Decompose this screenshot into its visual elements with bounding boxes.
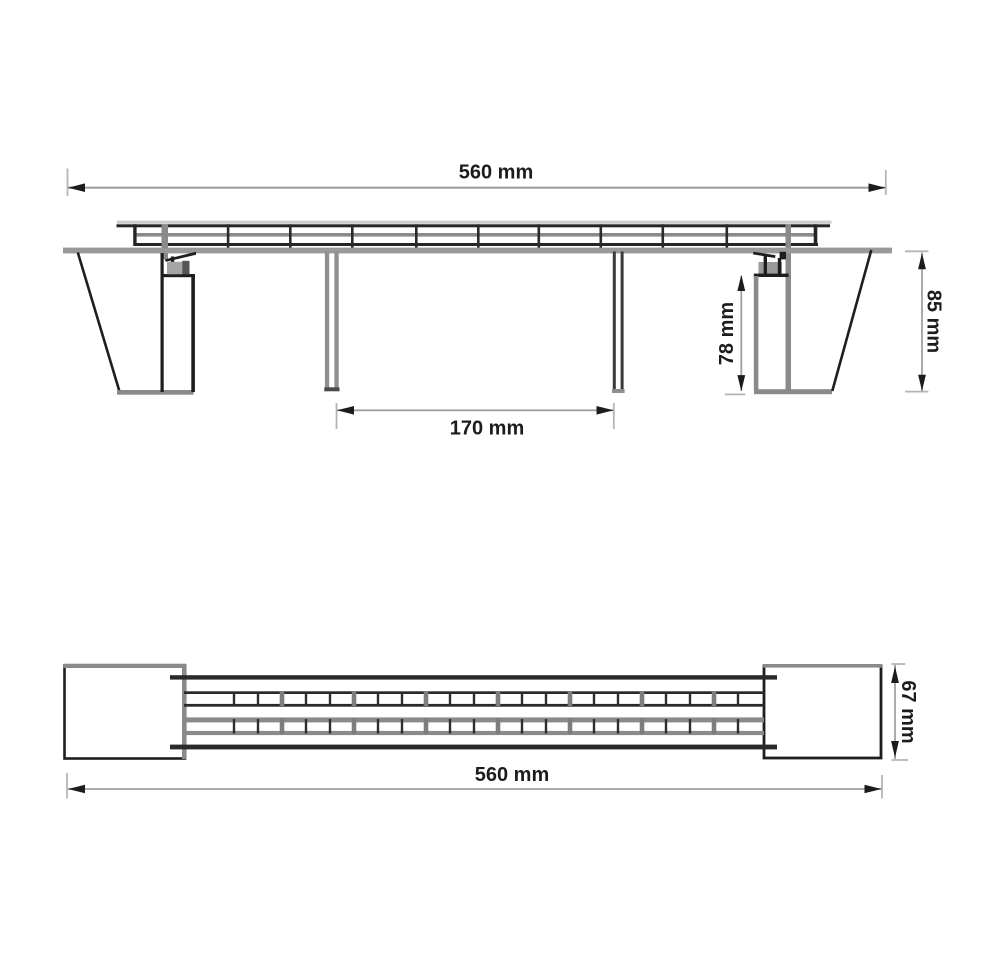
svg-text:78 mm: 78 mm bbox=[716, 302, 738, 365]
svg-text:170 mm: 170 mm bbox=[450, 418, 525, 440]
svg-text:85 mm: 85 mm bbox=[923, 290, 945, 353]
svg-text:560 mm: 560 mm bbox=[459, 162, 534, 184]
svg-text:67 mm: 67 mm bbox=[897, 680, 919, 743]
svg-text:560 mm: 560 mm bbox=[475, 764, 550, 786]
